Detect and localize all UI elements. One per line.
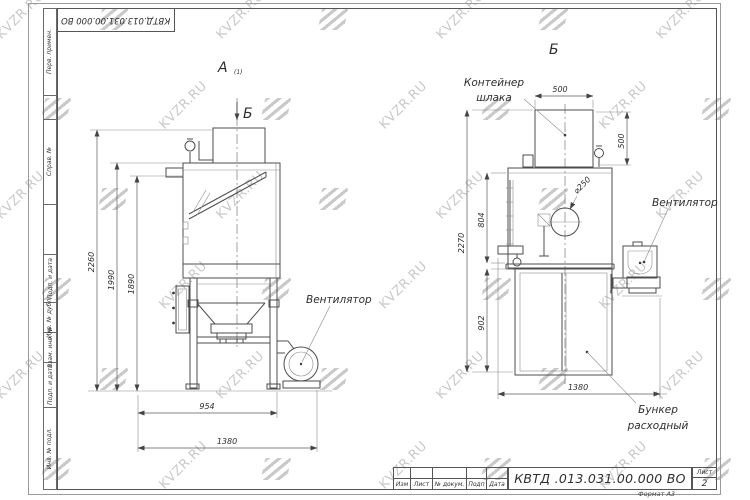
bunker-label-1: Бункер [638, 404, 678, 416]
fan-label: Вентилятор [306, 294, 372, 306]
view-b-dimensions: 500 500 2270 804 902 1380 [457, 85, 660, 399]
view-a-fan: Вентилятор [277, 294, 372, 388]
slag-container: Контейнер шлака [464, 77, 604, 167]
slag-container-label-1: Контейнер [464, 77, 524, 89]
hopper [197, 303, 265, 324]
left-leg [190, 278, 197, 388]
bunker-label-2: расходный [627, 420, 689, 432]
bracket [498, 246, 523, 254]
dim-954: 954 [199, 402, 214, 411]
view-a: А (1) Б [87, 60, 372, 452]
fan-leader [302, 306, 330, 362]
view-b-machine: ⌀250 [498, 168, 614, 269]
fan-leader [644, 209, 668, 262]
dim-1380: 1380 [217, 437, 237, 446]
dim-1380: 1380 [568, 383, 588, 392]
bunker-box [515, 269, 612, 375]
dim-2260: 2260 [87, 252, 96, 272]
machine-body [508, 168, 612, 268]
view-b-fan: Вентилятор [611, 197, 718, 296]
access-door [176, 286, 189, 333]
gauge [185, 141, 195, 151]
side-duct [166, 168, 183, 177]
fan-duct [613, 278, 627, 288]
view-b-label: Б [549, 42, 559, 58]
view-a-dimensions: 2260 1990 1890 954 1380 [87, 130, 317, 452]
dim-804: 804 [477, 212, 486, 227]
dim-902: 902 [477, 315, 486, 330]
d250-leader [570, 196, 577, 209]
slag-container-label-2: шлака [476, 92, 512, 104]
view-a-stand [88, 278, 332, 391]
dim-500w: 500 [552, 85, 567, 94]
machine-body [183, 163, 280, 278]
chimney [213, 128, 265, 163]
dim-1990: 1990 [107, 270, 116, 290]
drawing-sheet: { "watermark": { "text": "KVZR.RU" }, "s… [0, 0, 750, 500]
dim-500h: 500 [617, 133, 626, 148]
view-a-label-note: (1) [234, 69, 243, 76]
drawing-svg: А (1) Б [0, 0, 750, 500]
view-a-machine [166, 128, 280, 278]
fan-label: Вентилятор [652, 197, 718, 209]
dim-d250: ⌀250 [572, 175, 593, 196]
gauge [595, 149, 604, 158]
slag-container-leader [524, 99, 565, 135]
fan-base [283, 381, 320, 388]
hood-line [189, 172, 266, 214]
fan-base [629, 288, 656, 293]
dim-1890: 1890 [127, 274, 136, 294]
dim-2270: 2270 [457, 233, 466, 253]
view-b: Б Контейнер шлака [457, 42, 718, 432]
right-leg [270, 278, 277, 388]
cut-mark-label: Б [243, 106, 253, 122]
view-a-label: А [217, 60, 228, 76]
slag-container-box [535, 110, 593, 167]
valve [513, 258, 521, 266]
bunker: Бункер расходный [515, 269, 689, 432]
